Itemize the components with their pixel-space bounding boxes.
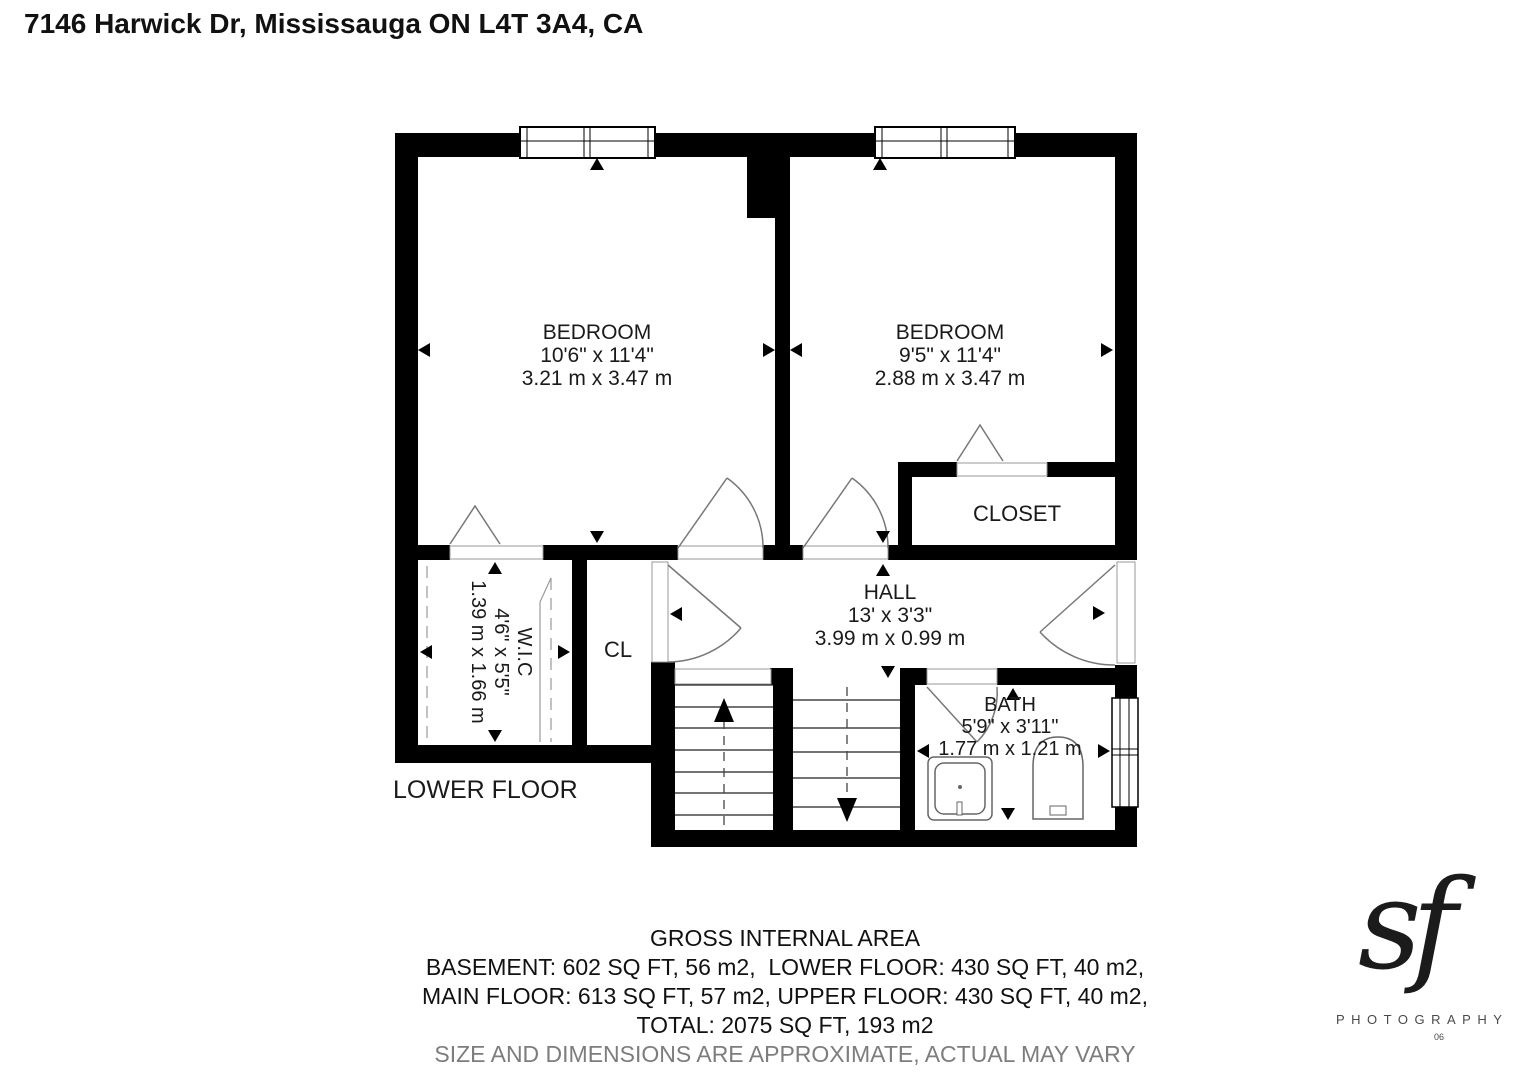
bedroom1-dims-metric: 3.21 m x 3.47 m: [522, 367, 673, 390]
dim-arrow-icon: [590, 158, 604, 170]
area-summary: GROSS INTERNAL AREA BASEMENT: 602 SQ FT,…: [390, 924, 1180, 1069]
wall-between-bedrooms: [775, 218, 790, 545]
dim-arrow-icon: [876, 564, 890, 576]
hall-entry-door: [1040, 565, 1115, 665]
wic-door-sill: [450, 546, 543, 559]
area-heading: GROSS INTERNAL AREA: [390, 924, 1180, 953]
cl-door-frame: [652, 562, 668, 662]
hall-label: HALL: [864, 581, 917, 604]
area-line-total: TOTAL: 2075 SQ FT, 193 m2: [390, 1011, 1180, 1040]
bath-dims-imperial: 5'9" x 3'11": [961, 716, 1058, 738]
dim-arrow-icon: [420, 645, 432, 659]
dim-arrow-icon: [1101, 343, 1113, 357]
floor-plan: BEDROOM 10'6" x 11'4" 3.21 m x 3.47 m BE…: [0, 0, 1528, 1080]
wall-closet-bottom: [898, 545, 1137, 560]
bedroom2-dims-imperial: 9'5" x 11'4": [899, 344, 1001, 367]
logo-wordmark: PHOTOGRAPHY: [1336, 1012, 1508, 1027]
dim-arrow-icon: [558, 645, 570, 659]
closet-door-sill: [957, 463, 1047, 476]
wall-chase: [747, 157, 790, 218]
window-bedroom2: [875, 127, 1015, 158]
bath-dims-metric: 1.77 m x 1.21 m: [938, 738, 1081, 760]
disclaimer: SIZE AND DIMENSIONS ARE APPROXIMATE, ACT…: [390, 1040, 1180, 1069]
wall-wic-divider: [572, 560, 587, 745]
wall-wic-bottom: [395, 745, 675, 763]
bedroom2-door-sill: [803, 546, 888, 559]
wic-bifold-door: [450, 506, 500, 544]
bedroom1-dims-imperial: 10'6" x 11'4": [540, 344, 654, 367]
bedroom1-door-sill: [678, 546, 763, 559]
sink: [928, 757, 992, 820]
hall-dims-metric: 3.99 m x 0.99 m: [815, 627, 966, 650]
bedroom2-label: BEDROOM: [896, 321, 1005, 344]
wall-right-mid: [1115, 665, 1137, 698]
wic-dims-imperial: 4'6" x 5'5": [490, 608, 512, 695]
closet-label: CLOSET: [973, 501, 1061, 526]
window-bath: [1112, 698, 1138, 807]
bedroom2-door: [803, 478, 888, 548]
photography-logo: sf PHOTOGRAPHY 06: [1332, 880, 1528, 1078]
dim-arrow-icon: [670, 607, 682, 621]
dim-arrow-icon: [418, 343, 430, 357]
area-line-main-upper: MAIN FLOOR: 613 SQ FT, 57 m2, UPPER FLOO…: [390, 982, 1180, 1011]
dim-arrow-icon: [763, 343, 775, 357]
stair-landing: [675, 669, 771, 684]
bedroom2-dims-metric: 2.88 m x 3.47 m: [875, 367, 1026, 390]
wall-right-upper: [1115, 133, 1137, 560]
door-frames: [450, 463, 1135, 684]
stairs-up-arrow-icon: [714, 698, 734, 722]
wall-bottom: [651, 830, 1137, 847]
logo-number: 06: [1434, 1032, 1444, 1042]
window-bedroom1: [520, 127, 655, 158]
logo-script-icon: sf: [1358, 854, 1448, 998]
hall-dims-imperial: 13' x 3'3": [848, 604, 932, 627]
bedroom1-label: BEDROOM: [543, 321, 652, 344]
wall-stair-left: [651, 662, 675, 847]
dim-arrow-icon: [917, 744, 929, 758]
dim-arrow-icon: [881, 666, 895, 678]
bath-door-sill: [927, 669, 997, 684]
wall-bath-left: [900, 685, 915, 830]
dim-arrow-icon: [1093, 606, 1105, 620]
floor-label: LOWER FLOOR: [393, 776, 578, 804]
cl-label: CL: [604, 637, 632, 662]
wic-dims-metric: 1.39 m x 1.66 m: [467, 580, 489, 723]
dim-arrow-icon: [590, 531, 604, 543]
bath-label: BATH: [984, 694, 1036, 716]
stairs-down-arrow-icon: [837, 798, 857, 822]
closet-bifold-door: [957, 425, 1003, 461]
dim-arrow-icon: [873, 158, 887, 170]
area-line-basement-lower: BASEMENT: 602 SQ FT, 56 m2, LOWER FLOOR:…: [390, 953, 1180, 982]
wall-closet-top-right: [1047, 462, 1115, 477]
bedroom1-door: [678, 478, 763, 548]
dim-arrow-icon: [488, 730, 502, 742]
hall-door-frame: [1117, 562, 1135, 663]
wall-left: [395, 133, 418, 763]
wall-stair-mid: [773, 668, 793, 830]
dim-arrow-icon: [1001, 808, 1015, 820]
wic-label: W.I.C: [513, 628, 535, 677]
dim-arrow-icon: [488, 562, 502, 574]
wic-label-group: W.I.C 4'6" x 5'5" 1.39 m x 1.66 m: [467, 580, 535, 723]
dim-arrow-icon: [1098, 744, 1110, 758]
dim-arrow-icon: [790, 343, 802, 357]
wall-top-mid: [655, 133, 875, 157]
